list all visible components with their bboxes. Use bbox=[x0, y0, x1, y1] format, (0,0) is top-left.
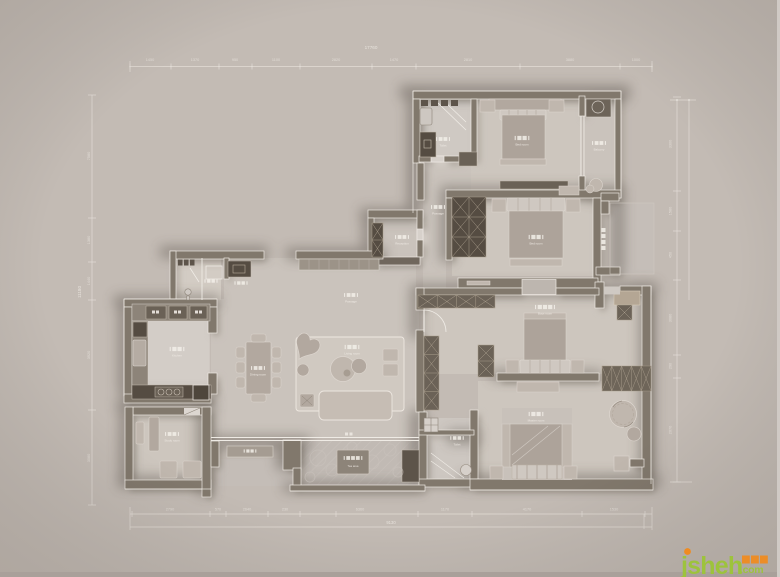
svg-text:jsheh: jsheh bbox=[680, 552, 742, 577]
svg-text:.com: .com bbox=[740, 564, 763, 576]
